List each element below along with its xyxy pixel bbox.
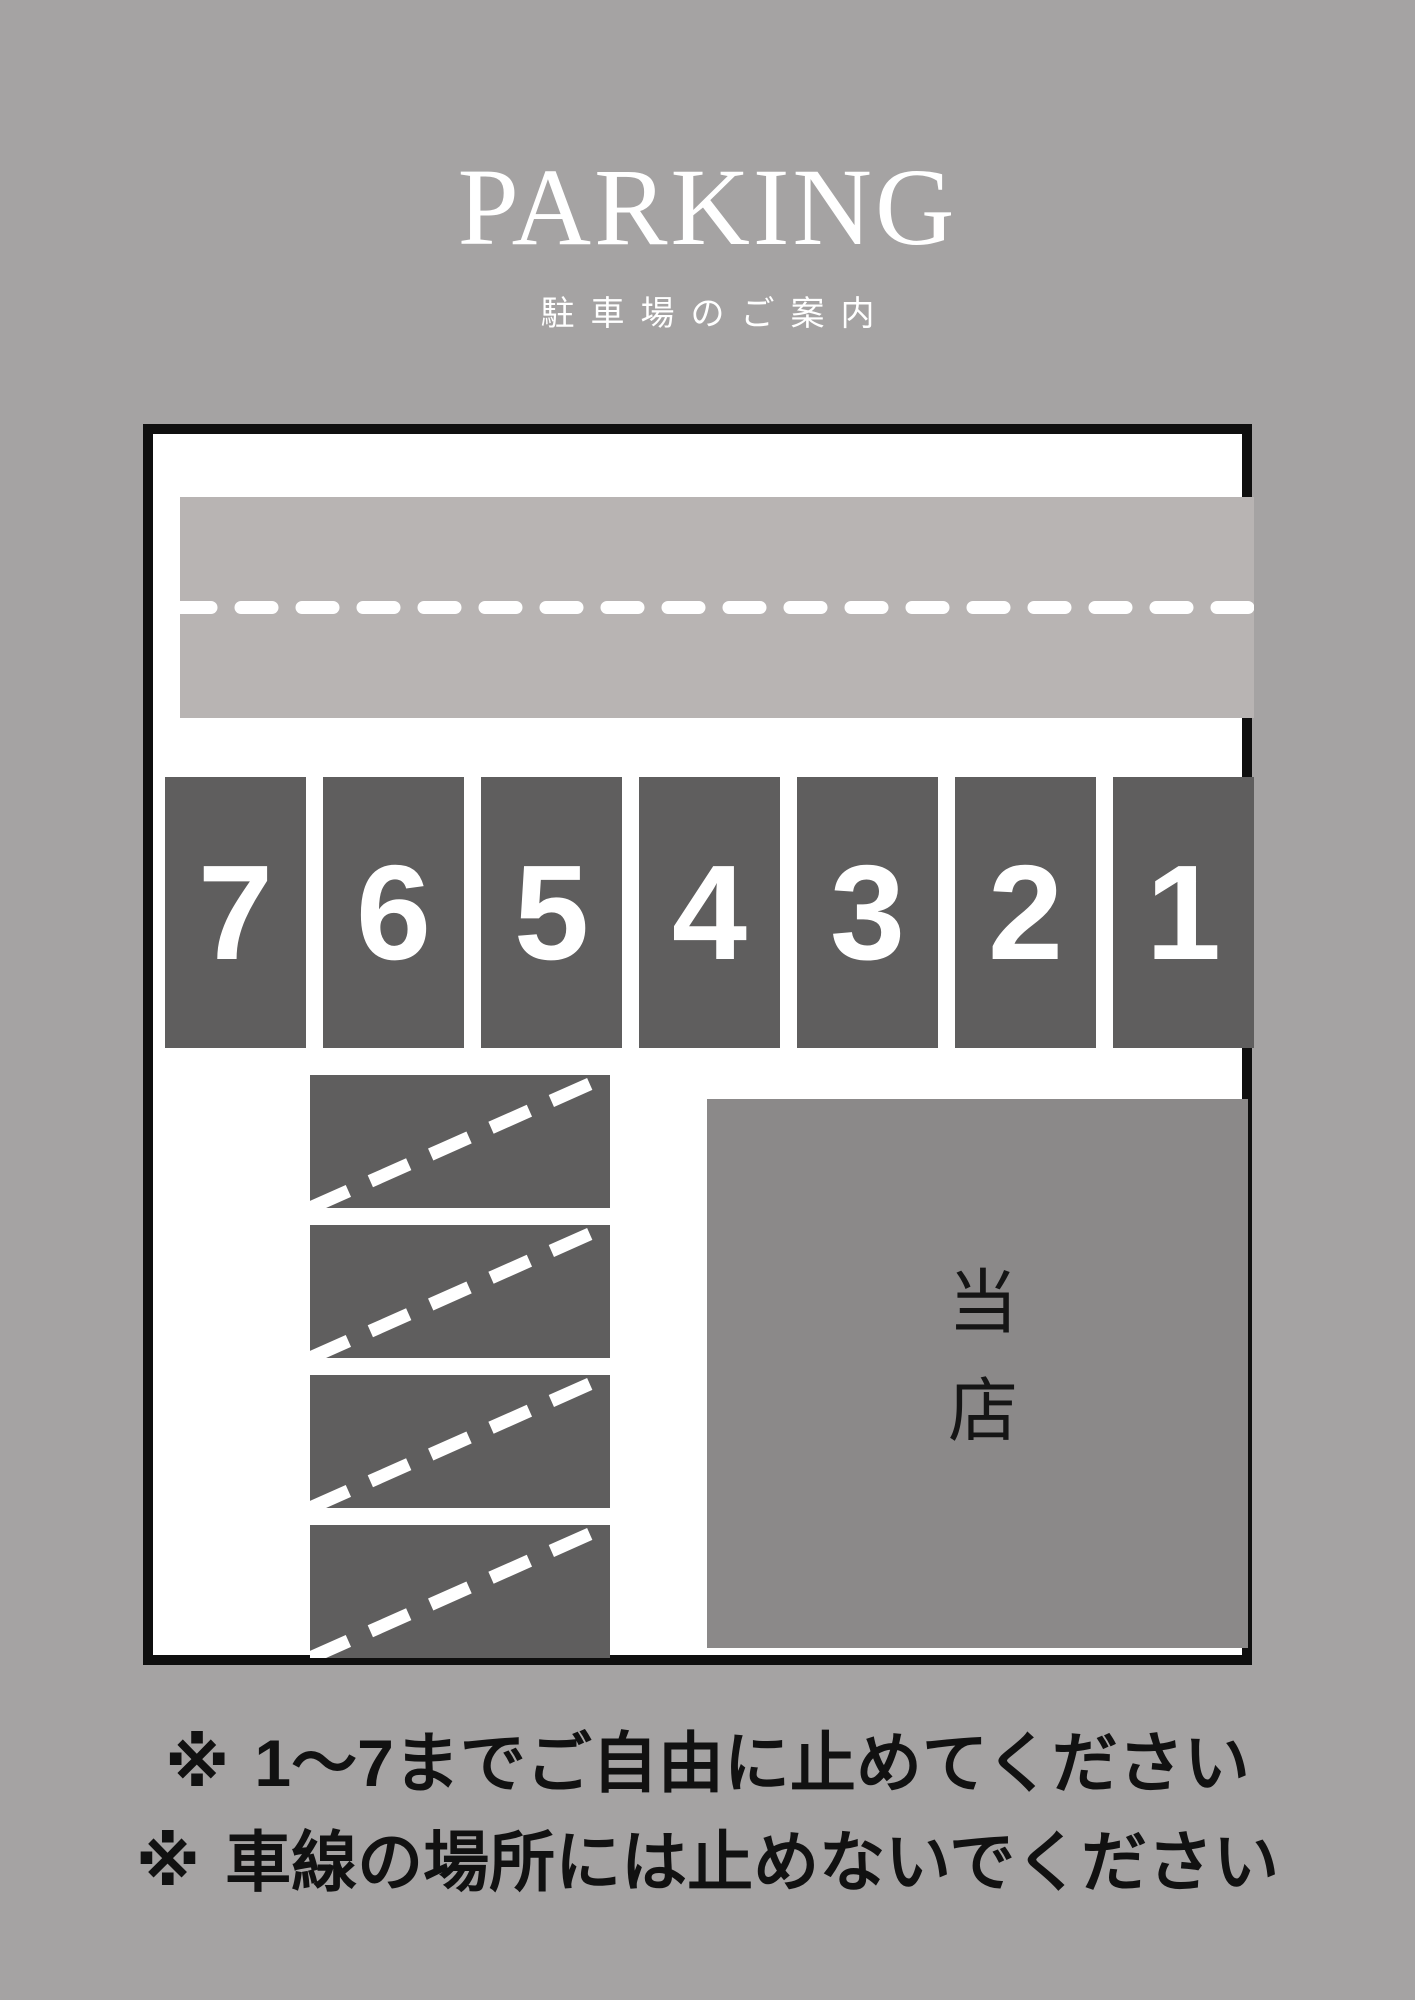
spot-number-label: 5 <box>514 845 589 980</box>
shop-block: 当店 <box>707 1099 1248 1648</box>
parking-spot-4: 4 <box>639 777 780 1048</box>
note-text: 車線の場所には止めないでください <box>225 1825 1279 1899</box>
note-marker: ※ <box>136 1825 200 1899</box>
spot-number-label: 1 <box>1146 845 1221 980</box>
page-title: PARKING <box>0 152 1415 262</box>
spot-number-label: 6 <box>356 845 431 980</box>
note-text: 1～7までご自由に止めてください <box>254 1726 1249 1800</box>
parking-spot-6: 6 <box>323 777 464 1048</box>
parking-spot-3: 3 <box>797 777 938 1048</box>
no-parking-dash-line <box>310 1525 610 1658</box>
no-parking-slot <box>310 1225 610 1358</box>
no-parking-dash-line <box>310 1375 610 1508</box>
parking-spot-7: 7 <box>165 777 306 1048</box>
no-parking-dash-line <box>310 1075 610 1208</box>
no-parking-dash-line <box>310 1225 610 1358</box>
no-parking-slot <box>310 1525 610 1658</box>
spot-number-label: 7 <box>198 845 273 980</box>
no-parking-slot <box>310 1075 610 1208</box>
shop-label: 当店 <box>943 1265 1013 1482</box>
road-center-dashed-line <box>180 497 1254 718</box>
poster-background: { "header": { "title": "PARKING", "subti… <box>0 0 1415 2000</box>
note-marker: ※ <box>165 1726 229 1800</box>
note-line-1: ※1～7までご自由に止めてください <box>0 1714 1415 1813</box>
parking-spot-5: 5 <box>481 777 622 1048</box>
road-area <box>180 497 1254 718</box>
spot-number-label: 4 <box>672 845 747 980</box>
parking-map-box: 7 6 5 4 3 2 1 <box>143 424 1252 1665</box>
notes-section: ※1～7までご自由に止めてください ※車線の場所には止めないでください <box>0 1714 1415 1912</box>
note-line-2: ※車線の場所には止めないでください <box>0 1813 1415 1912</box>
page-subtitle: 駐車場のご案内 <box>0 296 1415 333</box>
no-parking-slots <box>310 1075 610 1658</box>
parking-spots-row: 7 6 5 4 3 2 1 <box>165 777 1254 1048</box>
spot-number-label: 3 <box>830 845 905 980</box>
parking-spot-1: 1 <box>1113 777 1254 1048</box>
spot-number-label: 2 <box>988 845 1063 980</box>
no-parking-slot <box>310 1375 610 1508</box>
parking-spot-2: 2 <box>955 777 1096 1048</box>
